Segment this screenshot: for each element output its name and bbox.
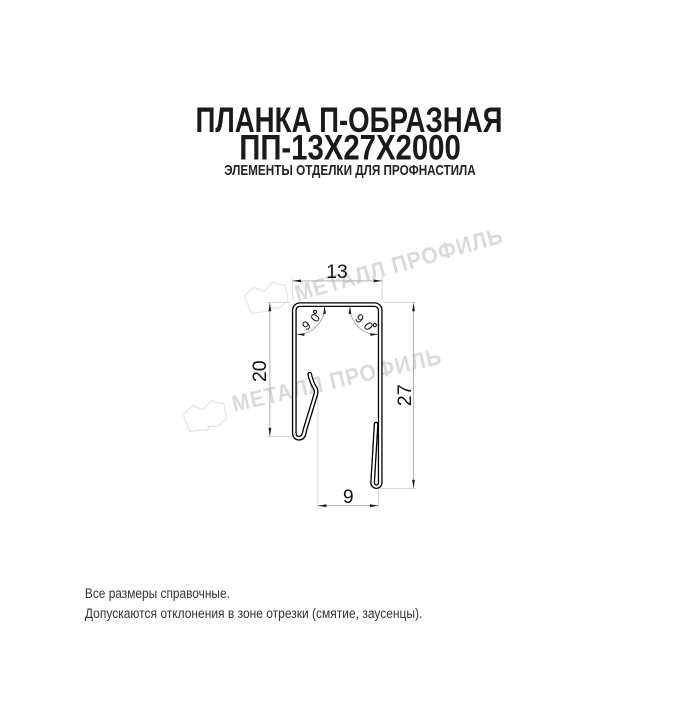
svg-text:27: 27 [394, 384, 416, 406]
svg-text:Все размеры справочные.: Все размеры справочные. [85, 586, 230, 602]
svg-text:20: 20 [249, 360, 271, 382]
svg-text:ПП-13Х27Х2000: ПП-13Х27Х2000 [239, 128, 461, 167]
svg-text:13: 13 [326, 262, 347, 283]
svg-text:9: 9 [343, 487, 354, 508]
svg-text:ЭЛЕМЕНТЫ ОТДЕЛКИ ДЛЯ ПРОФНАСТИ: ЭЛЕМЕНТЫ ОТДЕЛКИ ДЛЯ ПРОФНАСТИЛА [224, 163, 476, 179]
svg-text:Допускаются отклонения в зоне: Допускаются отклонения в зоне отрезки (с… [85, 606, 423, 622]
